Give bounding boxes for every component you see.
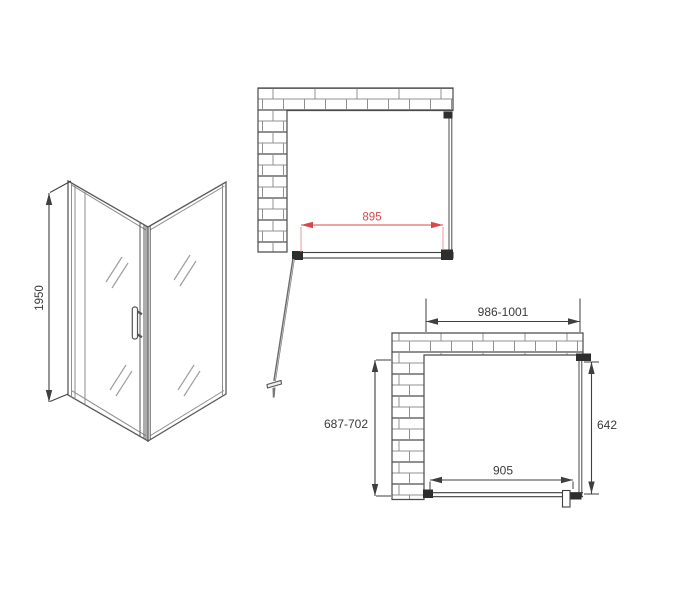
- side-view-3d: 1950: [34, 181, 226, 441]
- door-width-dimension-label: 895: [362, 212, 381, 224]
- door-width-dimension: 895: [301, 212, 443, 253]
- open-door-leaf: [267, 259, 294, 398]
- side-glass-panel: [148, 182, 226, 441]
- side-panel-length-dimension: 642: [584, 362, 617, 494]
- height-dimension-label: 1950: [34, 285, 46, 311]
- open-door-handle: [267, 381, 282, 389]
- side-panel-plan: [576, 354, 591, 498]
- door-rail: [423, 490, 583, 508]
- door-rail-width-label: 905: [493, 464, 513, 478]
- opening-depth-dimension: 687-702: [324, 360, 391, 496]
- brick-wall: [258, 88, 453, 252]
- door-rail-width-dimension: 905: [430, 464, 573, 492]
- open-door-tip: [273, 387, 276, 398]
- brick-wall: [392, 333, 583, 500]
- door-rail: [292, 250, 453, 261]
- rail-handle: [563, 491, 571, 508]
- opening-depth-label: 687-702: [324, 417, 368, 431]
- height-dimension: 1950: [34, 181, 71, 402]
- bottom-plan-view: 986-1001 687-702 642 90: [324, 299, 617, 508]
- side-panel-length-label: 642: [597, 418, 617, 432]
- opening-width-dimension: 986-1001: [426, 299, 580, 333]
- opening-width-label: 986-1001: [478, 305, 529, 319]
- side-panel-plan: [444, 112, 453, 253]
- diagram-canvas: 1950 895: [0, 0, 675, 600]
- technical-drawing: 1950 895: [0, 0, 675, 600]
